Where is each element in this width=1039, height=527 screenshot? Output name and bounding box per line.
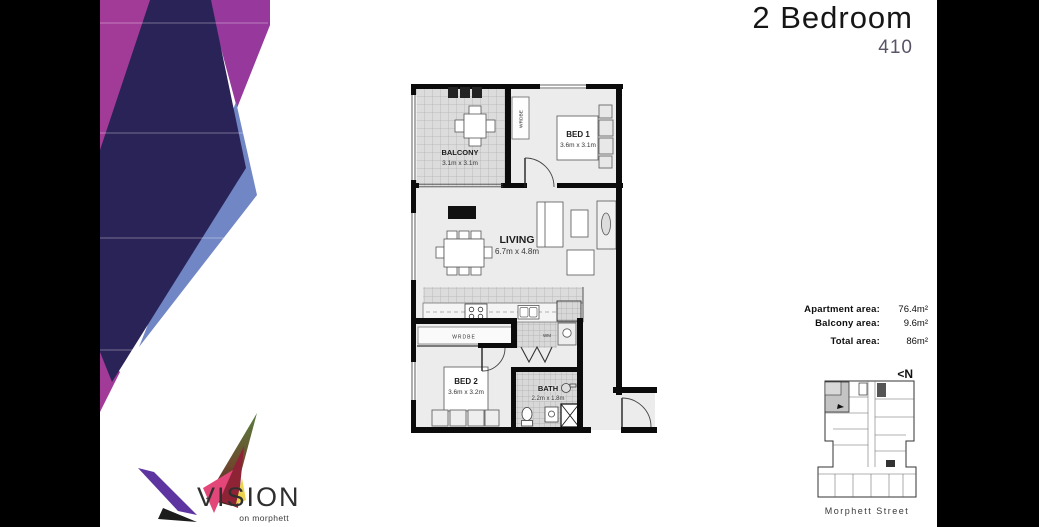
logo-wordmark: VISION	[197, 484, 289, 511]
wardrobe1-label: WRDBE	[519, 110, 525, 128]
living-label: LIVING	[499, 234, 534, 246]
bath-dims: 2.2m x 1.8m	[531, 396, 564, 402]
shower-rose	[562, 384, 571, 393]
bed1-label: BED 1	[566, 130, 590, 139]
wardrobe2-label: WRDBE	[452, 335, 476, 341]
bed2-dims: 3.6m x 3.2m	[448, 389, 484, 396]
right-black-bar	[937, 0, 1039, 527]
toilet	[522, 408, 532, 421]
bed2-label: BED 2	[454, 377, 478, 386]
apartment-area-value: 76.4m²	[880, 304, 928, 315]
console-table	[597, 201, 616, 249]
logo-tagline: on morphett	[197, 513, 289, 523]
total-area-value: 86m²	[880, 336, 928, 347]
total-area-label: Total area:	[770, 336, 880, 347]
page: 2 Bedroom 410	[0, 0, 1039, 527]
key-plan: <N	[810, 358, 922, 523]
laundry-floor-tiles	[517, 322, 557, 348]
balcony-dims: 3.1m x 3.1m	[442, 160, 478, 167]
street-label: Morphett Street	[825, 506, 910, 516]
balcony-area-label: Balcony area:	[770, 318, 880, 329]
brand-shard-graphic	[100, 0, 270, 430]
page-title: 2 Bedroom	[752, 2, 913, 33]
basin	[545, 407, 558, 422]
planter-boxes	[448, 87, 482, 98]
service-shaft	[561, 404, 579, 427]
washing-machine-label: WM	[543, 333, 551, 338]
bath-label: BATH	[538, 384, 558, 393]
area-row-apartment: Apartment area: 76.4m²	[770, 303, 928, 317]
left-black-bar	[0, 0, 100, 527]
north-indicator: <N	[897, 367, 913, 381]
living-dims: 6.7m x 4.8m	[495, 247, 539, 256]
balcony-label: BALCONY	[441, 148, 478, 157]
area-row-total: Total area: 86m²	[770, 335, 928, 349]
balcony-floor-tiles	[415, 86, 505, 186]
bed1-dims: 3.6m x 3.1m	[560, 142, 596, 149]
apartment-area-label: Apartment area:	[770, 304, 880, 315]
unit-number: 410	[752, 37, 913, 59]
area-row-balcony: Balcony area: 9.6m²	[770, 317, 928, 331]
area-schedule: Apartment area: 76.4m² Balcony area: 9.6…	[770, 303, 928, 349]
floor-plan: BALCONY 3.1m x 3.1m BED 1 3.6m x 3.1m LI…	[405, 78, 665, 440]
balcony-area-value: 9.6m²	[880, 318, 928, 329]
tv-unit	[448, 206, 476, 219]
highlighted-unit	[825, 382, 849, 412]
header: 2 Bedroom 410	[752, 2, 913, 59]
